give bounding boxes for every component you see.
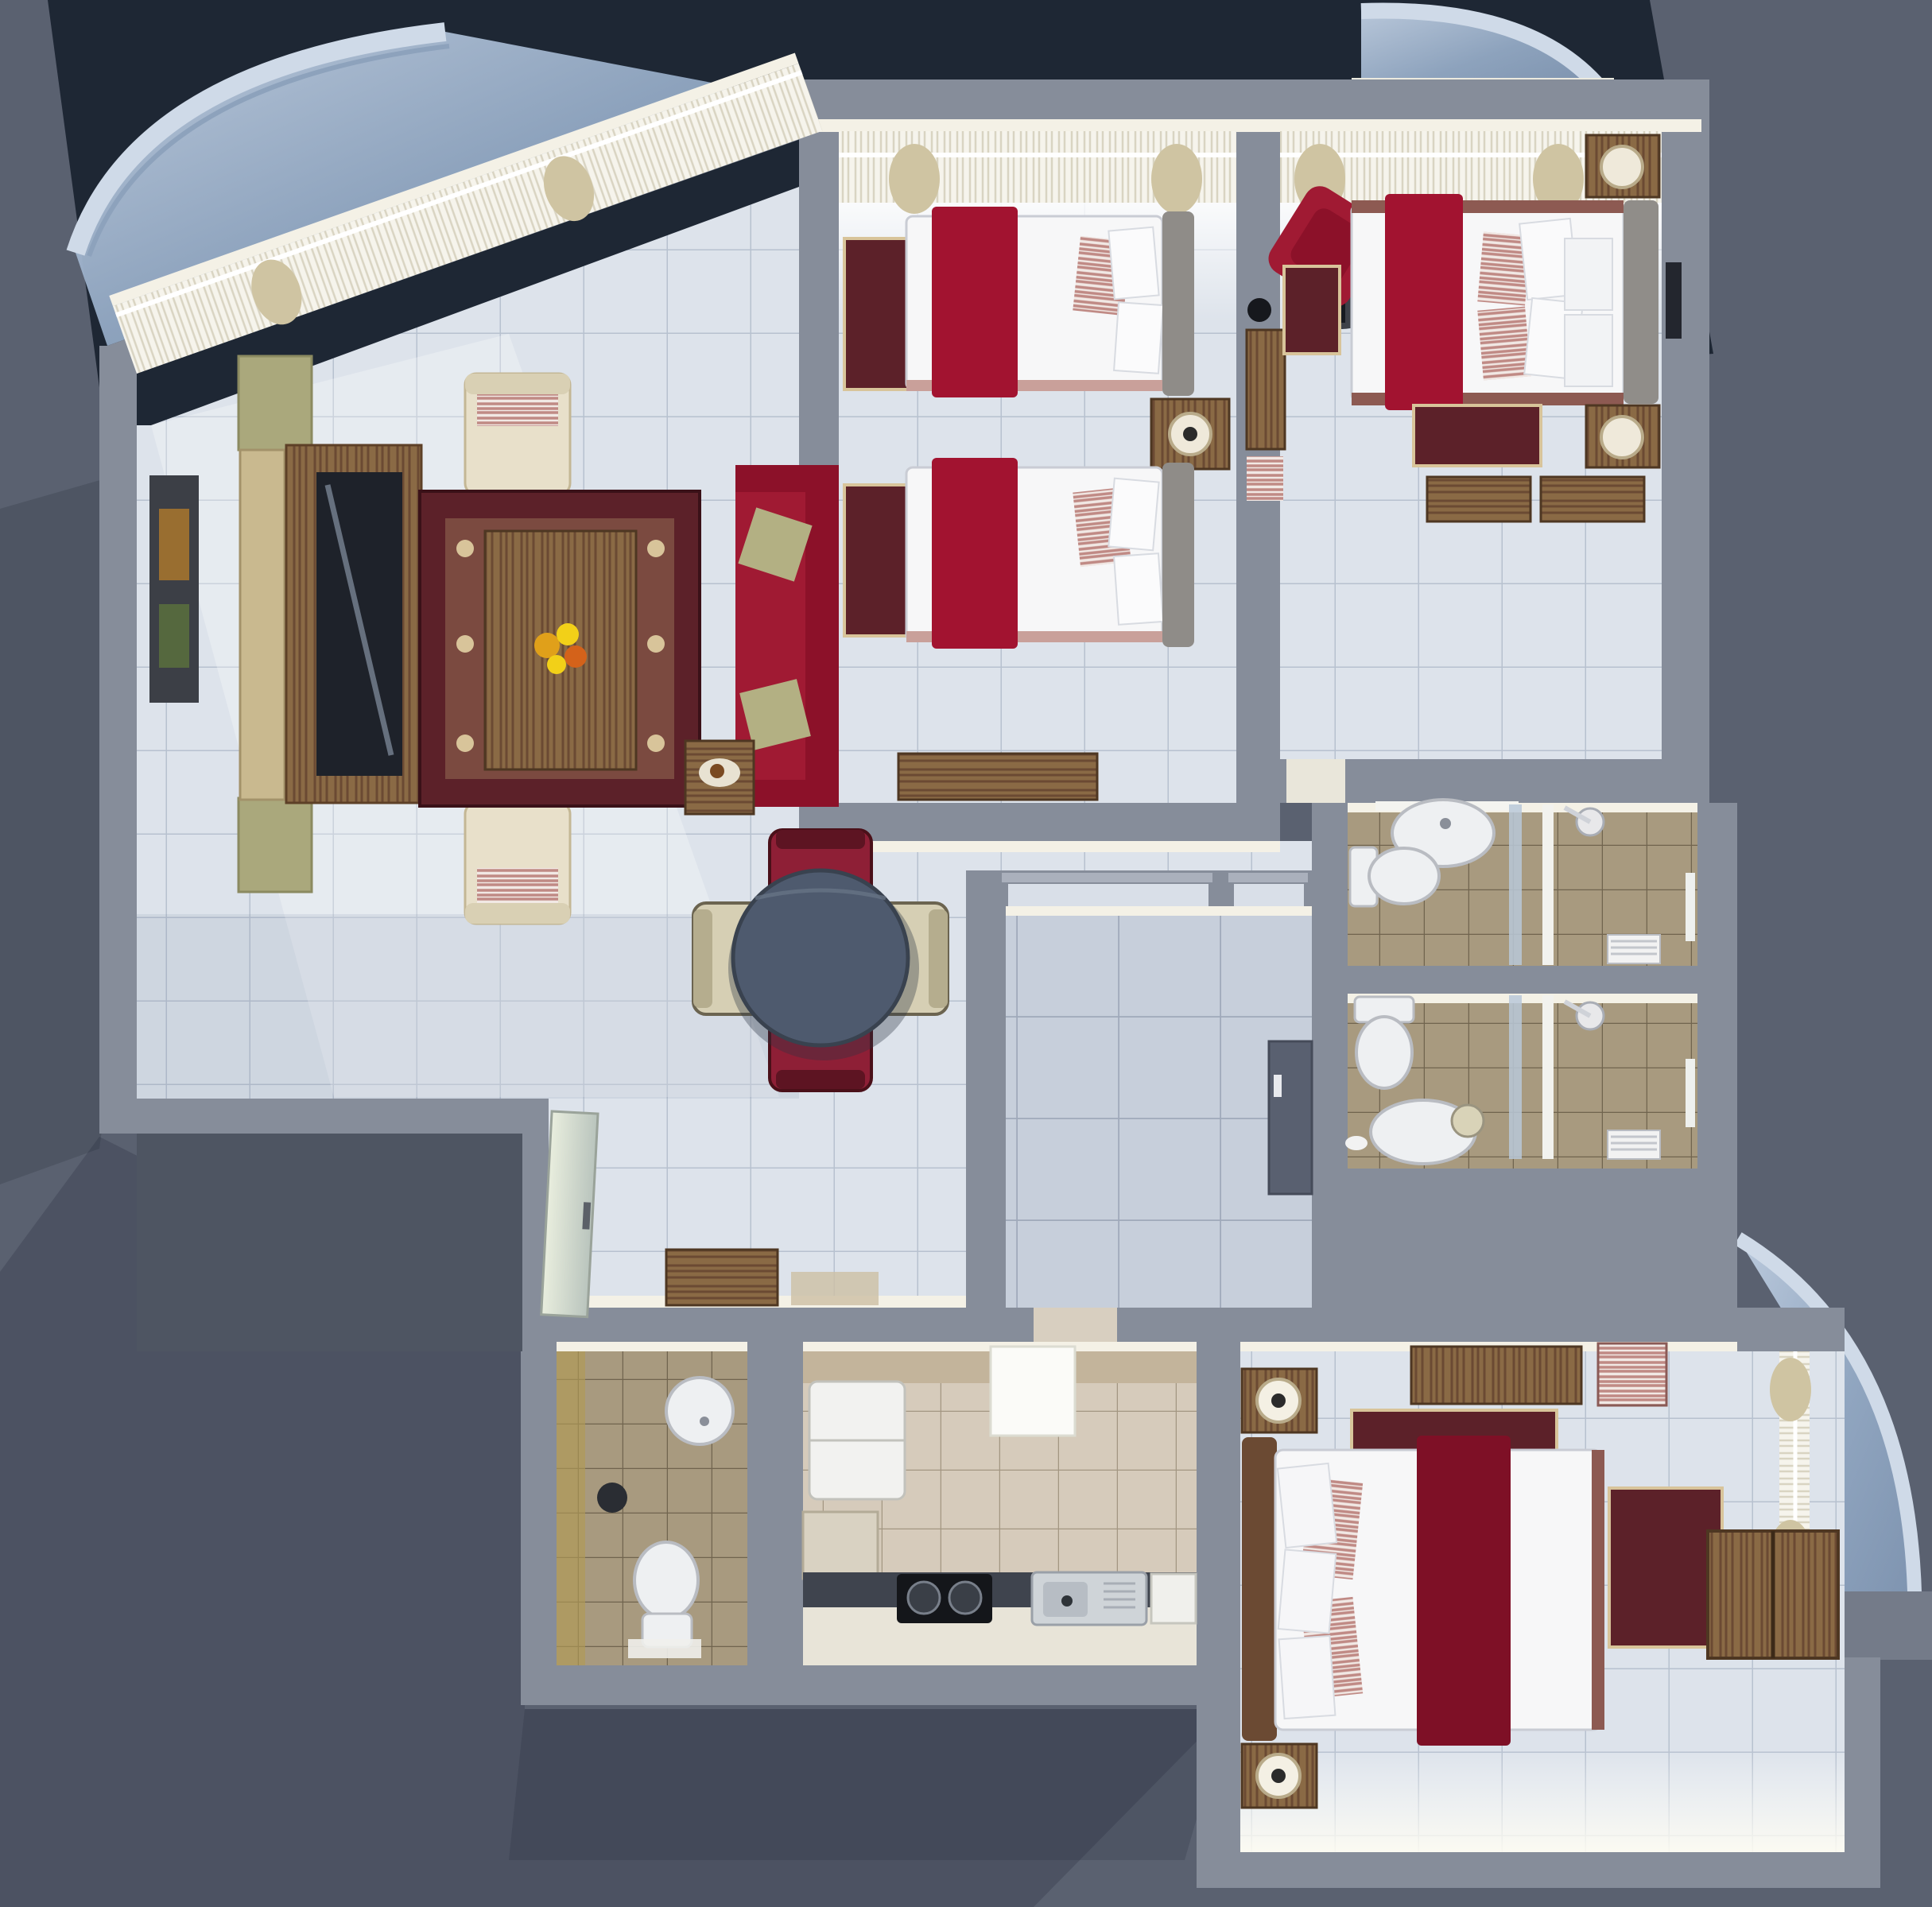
- wall-bathrooms-mid: [1348, 966, 1697, 994]
- striped-chair: [1598, 1343, 1666, 1405]
- door-mat: [791, 1272, 879, 1305]
- wall-master-right: [1662, 79, 1709, 803]
- sofa-back: [805, 465, 839, 807]
- shower-wall-band: [1542, 804, 1554, 965]
- pillow: [1278, 1463, 1336, 1548]
- shoe-bench: [666, 1250, 778, 1305]
- floral-bench: [239, 356, 312, 450]
- door-lintel: [1228, 873, 1308, 882]
- bedside-rug: [844, 485, 908, 636]
- bedside-rug: [1284, 266, 1340, 354]
- red-blanket: [932, 458, 1018, 649]
- pillow: [1565, 315, 1612, 386]
- burner: [949, 1582, 981, 1614]
- headboard: [1624, 200, 1658, 404]
- bench: [1427, 477, 1530, 521]
- dresser: [1411, 1347, 1581, 1404]
- floral-border: [1592, 1450, 1604, 1730]
- headboard: [1162, 211, 1194, 396]
- striped-pillow: [1477, 307, 1530, 381]
- dish-rack: [1151, 1574, 1196, 1623]
- building-shadow-below-kitchen: [509, 1709, 1228, 1860]
- nightstand-master-top: [1586, 135, 1659, 197]
- doorway-foyer-left: [1008, 884, 1208, 906]
- towel-radiator: [1608, 935, 1660, 963]
- pillow: [1278, 1549, 1336, 1633]
- nightstand-master-bottom: [1586, 405, 1659, 467]
- accent-tile-strip: [557, 1351, 585, 1665]
- shower-glass-partition: [1509, 804, 1522, 965]
- balcony-step: [1830, 1591, 1932, 1660]
- toilet: [1355, 997, 1414, 1088]
- burner: [908, 1582, 940, 1614]
- drain: [1061, 1595, 1073, 1607]
- wall-art: [1666, 262, 1682, 339]
- shower-door: [1686, 1059, 1695, 1127]
- headboard: [1242, 1437, 1277, 1741]
- wall-bedroom3-left: [1197, 1351, 1240, 1888]
- bench: [1541, 477, 1644, 521]
- pillow: [1565, 238, 1612, 310]
- floral-bench: [239, 798, 312, 892]
- toilet: [1350, 847, 1439, 906]
- curtain-tieback: [889, 144, 940, 214]
- pillow: [1279, 1636, 1336, 1719]
- red-blanket: [932, 207, 1018, 397]
- lit-face-foyer: [1006, 906, 1312, 916]
- wall-wc-left: [521, 1351, 557, 1701]
- armchair-top: [465, 374, 570, 494]
- wall-left: [99, 346, 137, 1134]
- door-lintel: [1002, 873, 1212, 882]
- pillow: [1114, 302, 1163, 374]
- ceiling-lamp: [991, 1347, 1075, 1436]
- wall-twin-bottom: [799, 803, 1280, 841]
- wardrobe-cabinet: [1269, 1041, 1312, 1194]
- desk: [898, 754, 1097, 800]
- wall-kitchen-bottom: [521, 1665, 1240, 1705]
- floor-foyer: [1006, 906, 1312, 1316]
- curtain-tieback: [1770, 1358, 1811, 1421]
- door-handle: [582, 1202, 591, 1229]
- table-lamp: [1601, 146, 1643, 188]
- table-lamp: [1601, 417, 1643, 458]
- nightstand-twin: [1151, 399, 1229, 469]
- faucet: [700, 1417, 709, 1426]
- lit-face-wc: [557, 1342, 747, 1351]
- bedside-rug: [844, 238, 908, 390]
- window-light: [1240, 1749, 1845, 1852]
- area-rug: [1609, 1488, 1722, 1647]
- lit-sill-top: [805, 119, 1701, 132]
- single-bed-1: [906, 207, 1194, 397]
- wall-void-dark: [137, 1134, 522, 1351]
- wall-foyer-left: [966, 906, 1006, 1316]
- red-runner: [1417, 1436, 1511, 1746]
- red-runner: [1385, 194, 1463, 410]
- waste-bin: [597, 1483, 627, 1513]
- wall-step-bottom-left: [99, 1099, 549, 1134]
- shower-glass-partition: [1509, 995, 1522, 1159]
- wall-art-detail: [159, 509, 189, 580]
- wall-bedroom3-top-right: [1737, 1308, 1845, 1351]
- wall-wc-kitchen: [747, 1351, 803, 1701]
- pillow: [1108, 479, 1158, 551]
- shower-wall-band: [1542, 995, 1554, 1159]
- striped-cushion: [477, 391, 558, 426]
- wall-bathrooms-right: [1697, 803, 1737, 1169]
- toilet: [634, 1542, 698, 1647]
- wardrobe-handle: [1274, 1075, 1282, 1097]
- towel-radiator: [1608, 1130, 1660, 1159]
- screen-divider: [240, 450, 285, 800]
- wall-bedroom3-bottom: [1197, 1852, 1880, 1888]
- curtain-tieback: [1151, 144, 1202, 214]
- armchair-bottom: [465, 803, 570, 924]
- striped-cushion: [477, 868, 558, 903]
- window-band-twin: [839, 131, 1236, 214]
- stool: [1247, 456, 1283, 501]
- doorway-master: [1286, 759, 1345, 803]
- floor-plan-canvas: [0, 0, 1932, 1907]
- nightstand-bed3-top: [1242, 1369, 1317, 1432]
- headboard: [1162, 463, 1194, 647]
- round-washbasin: [666, 1378, 733, 1444]
- wall-bathrooms-left: [1312, 803, 1348, 1169]
- floor-plan-render: [0, 0, 1932, 1907]
- refrigerator: [809, 1382, 905, 1499]
- pillow: [1114, 553, 1163, 625]
- entry-glass-door: [541, 1111, 598, 1317]
- cooktop: [897, 1574, 992, 1623]
- double-bed-3: [1242, 1436, 1604, 1746]
- wardrobe: [1708, 1531, 1838, 1658]
- wall-art-detail: [159, 604, 189, 668]
- pillow: [1108, 227, 1158, 300]
- single-bed-2: [906, 458, 1194, 649]
- counter-return: [803, 1512, 878, 1579]
- room-foyer: [1269, 1041, 1312, 1194]
- desk-lamp: [1247, 298, 1271, 322]
- kitchen-sink: [1032, 1572, 1146, 1625]
- faucet: [1440, 818, 1451, 829]
- nightstand-bed3-bottom: [1242, 1744, 1317, 1808]
- coffee-table: [485, 531, 636, 769]
- double-bed-master: [1352, 194, 1658, 410]
- wall-bedroom3-right: [1845, 1657, 1880, 1888]
- bedside-rug: [1414, 405, 1541, 466]
- bath-mat: [628, 1639, 701, 1658]
- shower-door: [1686, 873, 1695, 941]
- side-table: [685, 741, 754, 814]
- soap-dish: [1345, 1136, 1368, 1150]
- teddy-bear: [710, 764, 724, 778]
- wall-desk: [1247, 330, 1285, 449]
- doorway-foyer-right: [1234, 884, 1304, 906]
- mirror: [1452, 1105, 1484, 1137]
